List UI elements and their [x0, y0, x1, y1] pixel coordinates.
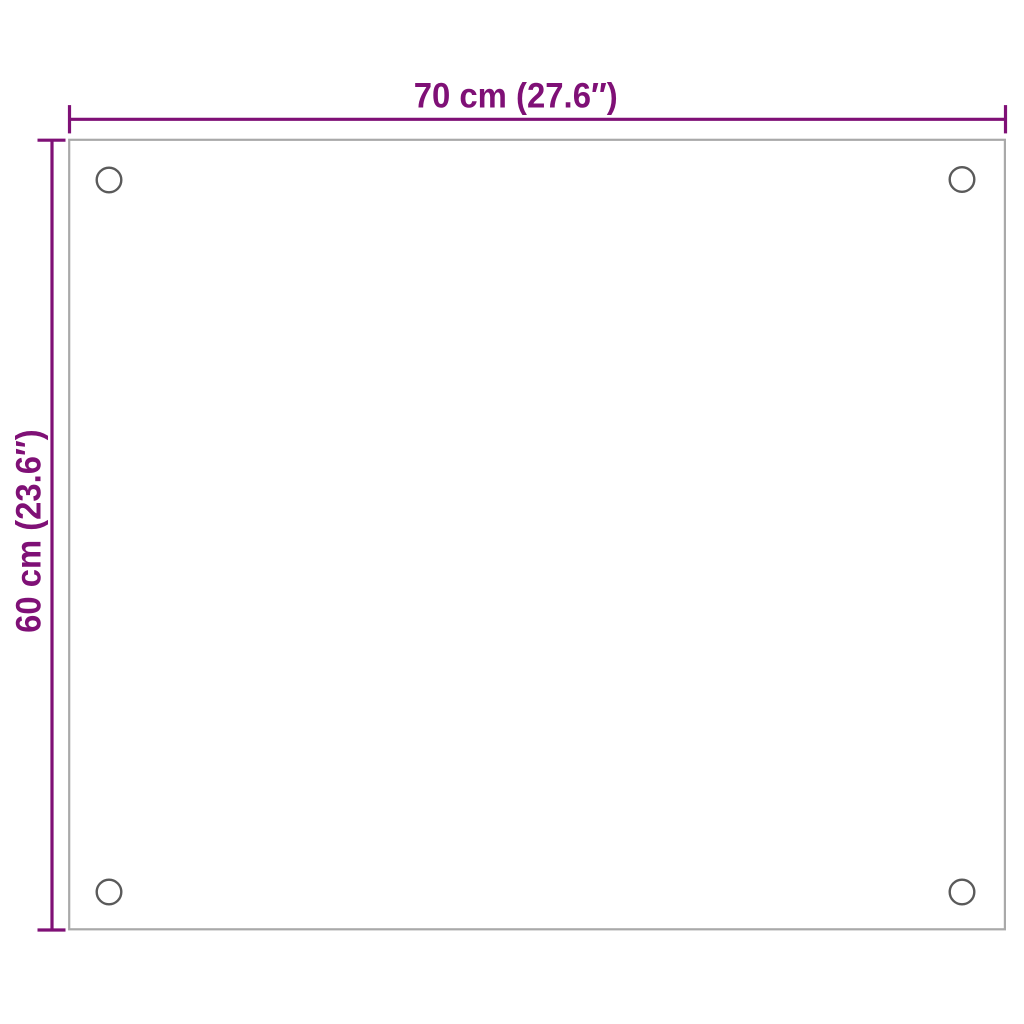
svg-text:70 cm (27.6″): 70 cm (27.6″): [414, 77, 618, 116]
svg-text:60 cm (23.6″): 60 cm (23.6″): [9, 429, 48, 633]
